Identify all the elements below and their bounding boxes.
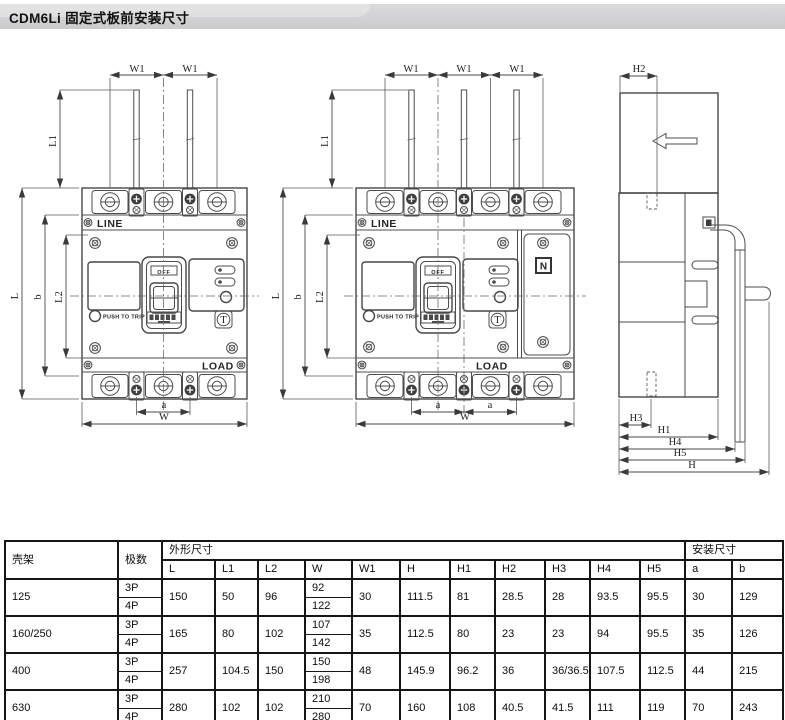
side-view: H2 H3 H1 H4 H5 H (619, 64, 771, 475)
neutral-pole-marking: N (536, 258, 551, 273)
dim-label-h5: H5 (674, 448, 687, 459)
dim-cell: 23 (545, 616, 590, 653)
dim-label-w1: W1 (129, 64, 144, 75)
dim-cell: 108 (450, 690, 495, 720)
col-header-H5: H5 (640, 560, 685, 579)
poles-cell: 4P (118, 672, 162, 691)
dim-cell: 40.5 (495, 690, 545, 720)
dim-cell: 165 (162, 616, 215, 653)
dim-cell: 93.5 (590, 579, 640, 616)
dim-label-h4: H4 (669, 437, 683, 448)
front-view-4p: LINE N OFF (271, 64, 586, 427)
front-view-3p: LINE OFF T (10, 64, 259, 427)
col-header-poles: 极数 (118, 541, 162, 579)
table-row: 125 3P 150 50 96 92 30 111.5 81 28.5 28 … (5, 579, 783, 598)
dim-label-l1: L1 (320, 135, 331, 147)
col-header-W: W (305, 560, 352, 579)
col-header-L1: L1 (215, 560, 258, 579)
dim-cell: 198 (305, 672, 352, 691)
dim-cell: 95.5 (640, 579, 685, 616)
indicator-panel-3p (189, 259, 244, 311)
dim-cell: 112.5 (640, 653, 685, 690)
dim-cell: 150 (162, 579, 215, 616)
dim-label-h1: H1 (658, 425, 671, 436)
dimensions-3p: W1 W1 L1 L b L2 a (10, 64, 259, 427)
side-outline (619, 93, 718, 397)
push-to-trip-label: PUSH TO TRIP (377, 315, 419, 321)
dim-cell: 80 (215, 616, 258, 653)
dim-cell: 104.5 (215, 653, 258, 690)
dim-label-w1: W1 (509, 64, 524, 75)
frame-cell: 160/250 (5, 616, 118, 653)
dim-label-w: W (460, 412, 470, 423)
dim-cell: 70 (685, 690, 732, 720)
dim-label-l2: L2 (315, 291, 326, 303)
poles-cell: 4P (118, 635, 162, 654)
technical-drawings: LINE OFF T (0, 0, 785, 540)
dim-label-l: L (271, 293, 282, 299)
dim-cell: 80 (450, 616, 495, 653)
indicator-panel-4p (463, 259, 518, 311)
direction-arrow-icon (653, 134, 697, 149)
dim-cell: 70 (352, 690, 400, 720)
col-header-H3: H3 (545, 560, 590, 579)
dim-label-l2: L2 (54, 291, 65, 303)
frame-cell: 400 (5, 653, 118, 690)
dimension-table: 壳架 极数 外形尺寸 安装尺寸 L L1 L2 W W1 H H1 H2 H3 … (4, 540, 784, 720)
dim-label-l: L (10, 293, 21, 299)
push-to-trip-label: PUSH TO TRIP (103, 315, 145, 321)
dim-cell: 243 (732, 690, 783, 720)
dim-cell: 35 (352, 616, 400, 653)
test-button-label: T (494, 315, 501, 326)
dim-cell: 102 (258, 690, 305, 720)
dim-cell: 111 (590, 690, 640, 720)
dim-cell: 160 (400, 690, 450, 720)
dim-cell: 94 (590, 616, 640, 653)
dim-cell: 107 (305, 616, 352, 635)
col-header-frame: 壳架 (5, 541, 118, 579)
mounting-bar (745, 287, 771, 300)
dim-cell: 215 (732, 653, 783, 690)
dim-cell: 92 (305, 579, 352, 598)
dim-cell: 41.5 (545, 690, 590, 720)
line-side-label: LINE (371, 218, 397, 230)
load-side-label: LOAD (202, 361, 234, 373)
dim-cell: 111.5 (400, 579, 450, 616)
table-row: 630 3P 280 102 102 210 70 160 108 40.5 4… (5, 690, 783, 709)
dim-cell: 81 (450, 579, 495, 616)
push-to-trip-3p: PUSH TO TRIP (90, 311, 146, 322)
catalog-page: CDM6Li 固定式板前安装尺寸 (0, 0, 785, 720)
line-side-label: LINE (97, 218, 123, 230)
dim-cell: 44 (685, 653, 732, 690)
dim-cell: 122 (305, 598, 352, 617)
col-header-b: b (732, 560, 783, 579)
poles-cell: 3P (118, 579, 162, 598)
dim-cell: 280 (162, 690, 215, 720)
dim-label-l1: L1 (48, 135, 59, 147)
top-terminals-4p (367, 90, 561, 216)
dim-cell: 150 (258, 653, 305, 690)
poles-cell: 3P (118, 653, 162, 672)
dim-label-h2: H2 (633, 64, 646, 75)
push-to-trip-4p: PUSH TO TRIP (364, 311, 420, 322)
dim-label-w1: W1 (182, 64, 197, 75)
dim-label-w1: W1 (403, 64, 418, 75)
dim-cell: 96.2 (450, 653, 495, 690)
face-4p: LINE N OFF (358, 218, 571, 373)
dim-cell: 102 (258, 616, 305, 653)
col-header-L2: L2 (258, 560, 305, 579)
dim-cell: 28 (545, 579, 590, 616)
frame-cell: 630 (5, 690, 118, 720)
load-side-label: LOAD (476, 361, 508, 373)
dim-cell: 102 (215, 690, 258, 720)
dim-cell: 50 (215, 579, 258, 616)
poles-cell: 4P (118, 598, 162, 617)
poles-cell: 3P (118, 690, 162, 709)
dim-cell: 150 (305, 653, 352, 672)
dim-cell: 280 (305, 709, 352, 720)
col-header-H1: H1 (450, 560, 495, 579)
col-header-a: a (685, 560, 732, 579)
test-button-4p: T (489, 311, 506, 328)
dim-cell: 129 (732, 579, 783, 616)
dim-cell: 119 (640, 690, 685, 720)
dim-cell: 35 (685, 616, 732, 653)
dim-cell: 145.9 (400, 653, 450, 690)
dim-label-w: W (159, 412, 169, 423)
dim-cell: 96 (258, 579, 305, 616)
dim-cell: 257 (162, 653, 215, 690)
dim-cell: 30 (352, 579, 400, 616)
dim-cell: 23 (495, 616, 545, 653)
dim-label-h3: H3 (630, 413, 643, 424)
table-row: 160/250 3P 165 80 102 107 35 112.5 80 23… (5, 616, 783, 635)
col-header-W1: W1 (352, 560, 400, 579)
col-group-mounting: 安装尺寸 (685, 541, 783, 560)
dim-cell: 36/36.5 (545, 653, 590, 690)
col-header-H: H (400, 560, 450, 579)
dim-label-a: a (162, 400, 167, 411)
test-button-3p: T (215, 311, 232, 328)
dim-cell: 48 (352, 653, 400, 690)
dim-label-a: a (488, 400, 493, 411)
dim-cell: 36 (495, 653, 545, 690)
col-header-H2: H2 (495, 560, 545, 579)
dim-cell: 30 (685, 579, 732, 616)
dim-cell: 95.5 (640, 616, 685, 653)
col-header-L: L (162, 560, 215, 579)
dim-cell: 107.5 (590, 653, 640, 690)
off-marking: OFF (157, 270, 170, 276)
dim-label-b: b (293, 294, 304, 299)
table-row: 400 3P 257 104.5 150 150 48 145.9 96.2 3… (5, 653, 783, 672)
face-3p: LINE OFF T (84, 218, 245, 373)
dimensions-side: H2 H3 H1 H4 H5 H (619, 64, 769, 475)
rear-busbar (710, 225, 771, 442)
toggle-switch-3p: OFF (142, 257, 186, 333)
dim-label-a: a (436, 400, 441, 411)
poles-cell: 4P (118, 709, 162, 720)
dim-label-h: H (688, 460, 696, 471)
dim-cell: 126 (732, 616, 783, 653)
dim-cell: 210 (305, 690, 352, 709)
dim-label-b: b (33, 294, 44, 299)
frame-cell: 125 (5, 579, 118, 616)
col-group-outline: 外形尺寸 (162, 541, 685, 560)
dim-label-w1: W1 (456, 64, 471, 75)
neutral-label: N (540, 262, 547, 273)
test-button-label: T (220, 315, 227, 326)
dim-cell: 112.5 (400, 616, 450, 653)
dim-cell: 142 (305, 635, 352, 654)
poles-cell: 3P (118, 616, 162, 635)
dim-cell: 28.5 (495, 579, 545, 616)
col-header-H4: H4 (590, 560, 640, 579)
